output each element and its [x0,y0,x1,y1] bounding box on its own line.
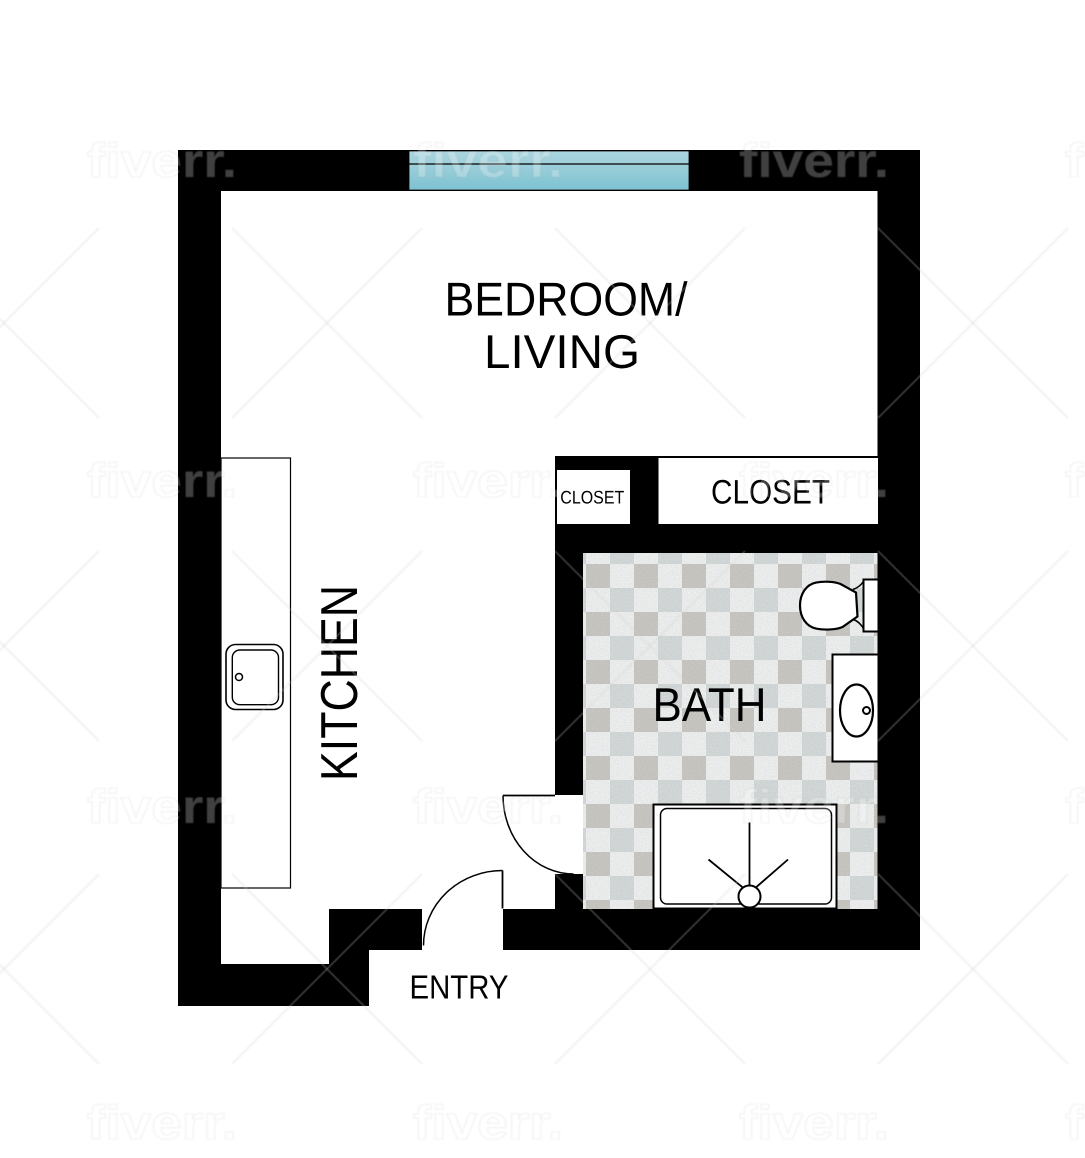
svg-text:fiverr.: fiverr. [739,1097,889,1150]
svg-text:fiverr.: fiverr. [1065,1097,1085,1150]
svg-text:fiverr.: fiverr. [87,781,237,834]
svg-text:fiverr.: fiverr. [87,135,237,188]
svg-text:fiverr.: fiverr. [413,455,563,508]
svg-text:fiverr.: fiverr. [1065,781,1085,834]
svg-text:LIVING: LIVING [484,326,640,379]
svg-text:fiverr.: fiverr. [1065,135,1085,188]
svg-text:fiverr.: fiverr. [1065,455,1085,508]
svg-text:BEDROOM/: BEDROOM/ [445,274,689,327]
svg-text:fiverr.: fiverr. [413,135,563,188]
svg-text:ENTRY: ENTRY [410,970,509,1007]
svg-text:fiverr.: fiverr. [87,1097,237,1150]
svg-text:fiverr.: fiverr. [739,781,889,834]
svg-text:fiverr.: fiverr. [413,1097,563,1150]
svg-text:fiverr.: fiverr. [413,781,563,834]
svg-text:fiverr.: fiverr. [739,135,889,188]
svg-text:fiverr.: fiverr. [739,455,889,508]
svg-text:CLOSET: CLOSET [560,487,624,508]
svg-text:fiverr.: fiverr. [87,455,237,508]
